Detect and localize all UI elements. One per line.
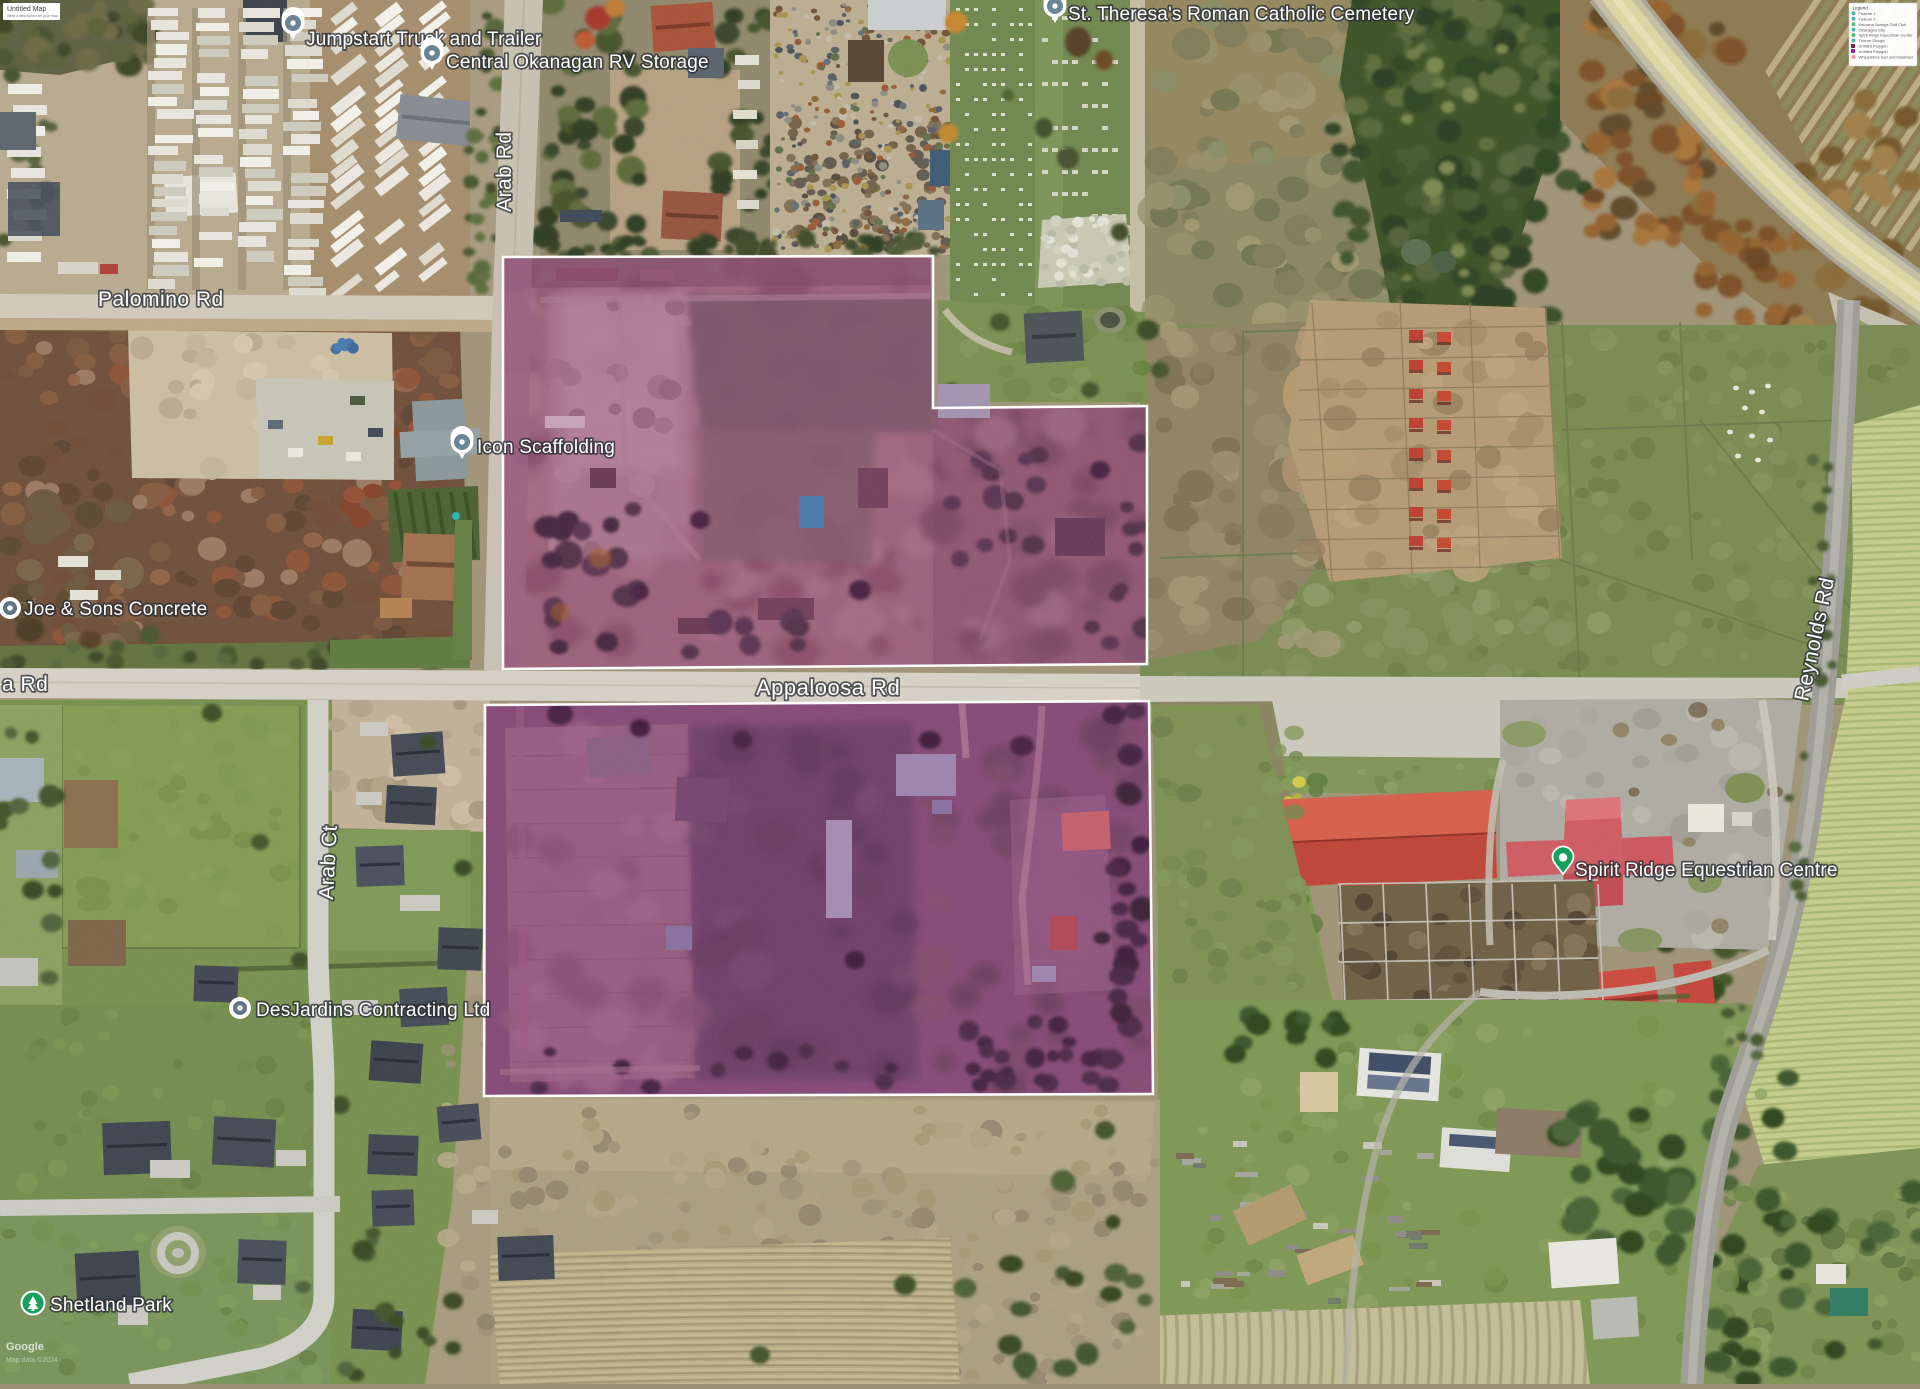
svg-text:a Rd: a Rd [2,673,48,696]
svg-text:Arab Ct: Arab Ct [315,824,342,900]
svg-text:Appaloosa Rd: Appaloosa Rd [756,675,900,700]
svg-text:Icon Scaffolding: Icon Scaffolding [477,437,615,458]
svg-text:Legend: Legend [1853,6,1869,11]
svg-text:Spirit Ridge Equestrian Centre: Spirit Ridge Equestrian Centre [1859,33,1914,38]
svg-text:Thorne Slough: Thorne Slough [1859,38,1885,43]
svg-text:Google: Google [6,1341,44,1353]
svg-text:Untitled Map: Untitled Map [7,6,46,13]
svg-text:Spirit Ridge Equestrian Centre: Spirit Ridge Equestrian Centre [1575,860,1838,881]
svg-text:Kelowna Springs Golf Club: Kelowna Springs Golf Club [1859,22,1908,27]
svg-text:Untitled Polygon: Untitled Polygon [1859,49,1888,54]
svg-text:Map data ©2024: Map data ©2024 [6,1356,58,1364]
svg-text:Central Okanagan RV Storage: Central Okanagan RV Storage [446,52,709,73]
svg-text:Whippletree bed and breakfast: Whippletree bed and breakfast [1859,55,1914,60]
svg-text:Untitled Polygon: Untitled Polygon [1859,44,1888,49]
svg-text:Arab Rd: Arab Rd [493,131,516,212]
svg-text:Okanagan City: Okanagan City [1859,27,1885,32]
svg-text:DesJardins Contracting Ltd: DesJardins Contracting Ltd [256,1000,490,1021]
svg-text:Feature 1: Feature 1 [1859,11,1877,16]
svg-text:St. Theresa's Roman Catholic C: St. Theresa's Roman Catholic Cemetery [1068,4,1415,25]
svg-text:Joe & Sons Concrete: Joe & Sons Concrete [24,599,207,620]
svg-text:Feature 2: Feature 2 [1859,16,1877,21]
svg-text:Write a description for your m: Write a description for your map. [7,14,59,18]
svg-text:Palomino Rd: Palomino Rd [98,288,224,311]
svg-text:Shetland Park: Shetland Park [50,1295,172,1316]
